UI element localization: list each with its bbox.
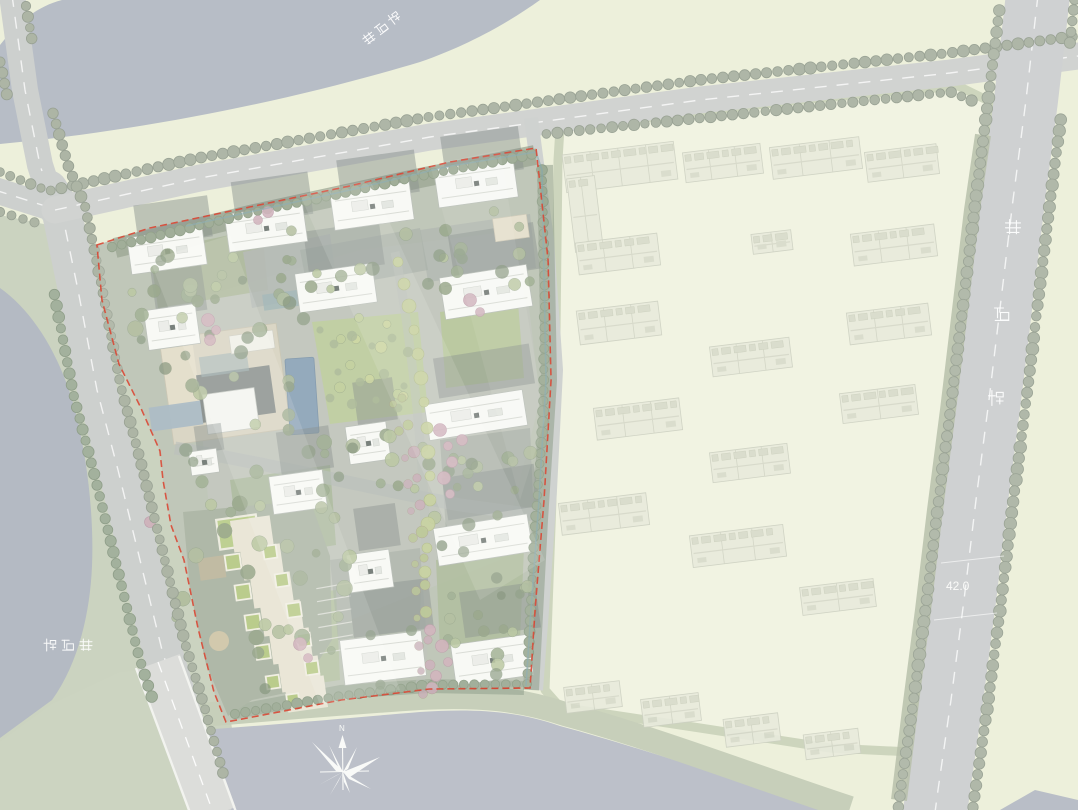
svg-text:42.0: 42.0	[946, 579, 970, 593]
svg-text:N: N	[339, 724, 345, 733]
